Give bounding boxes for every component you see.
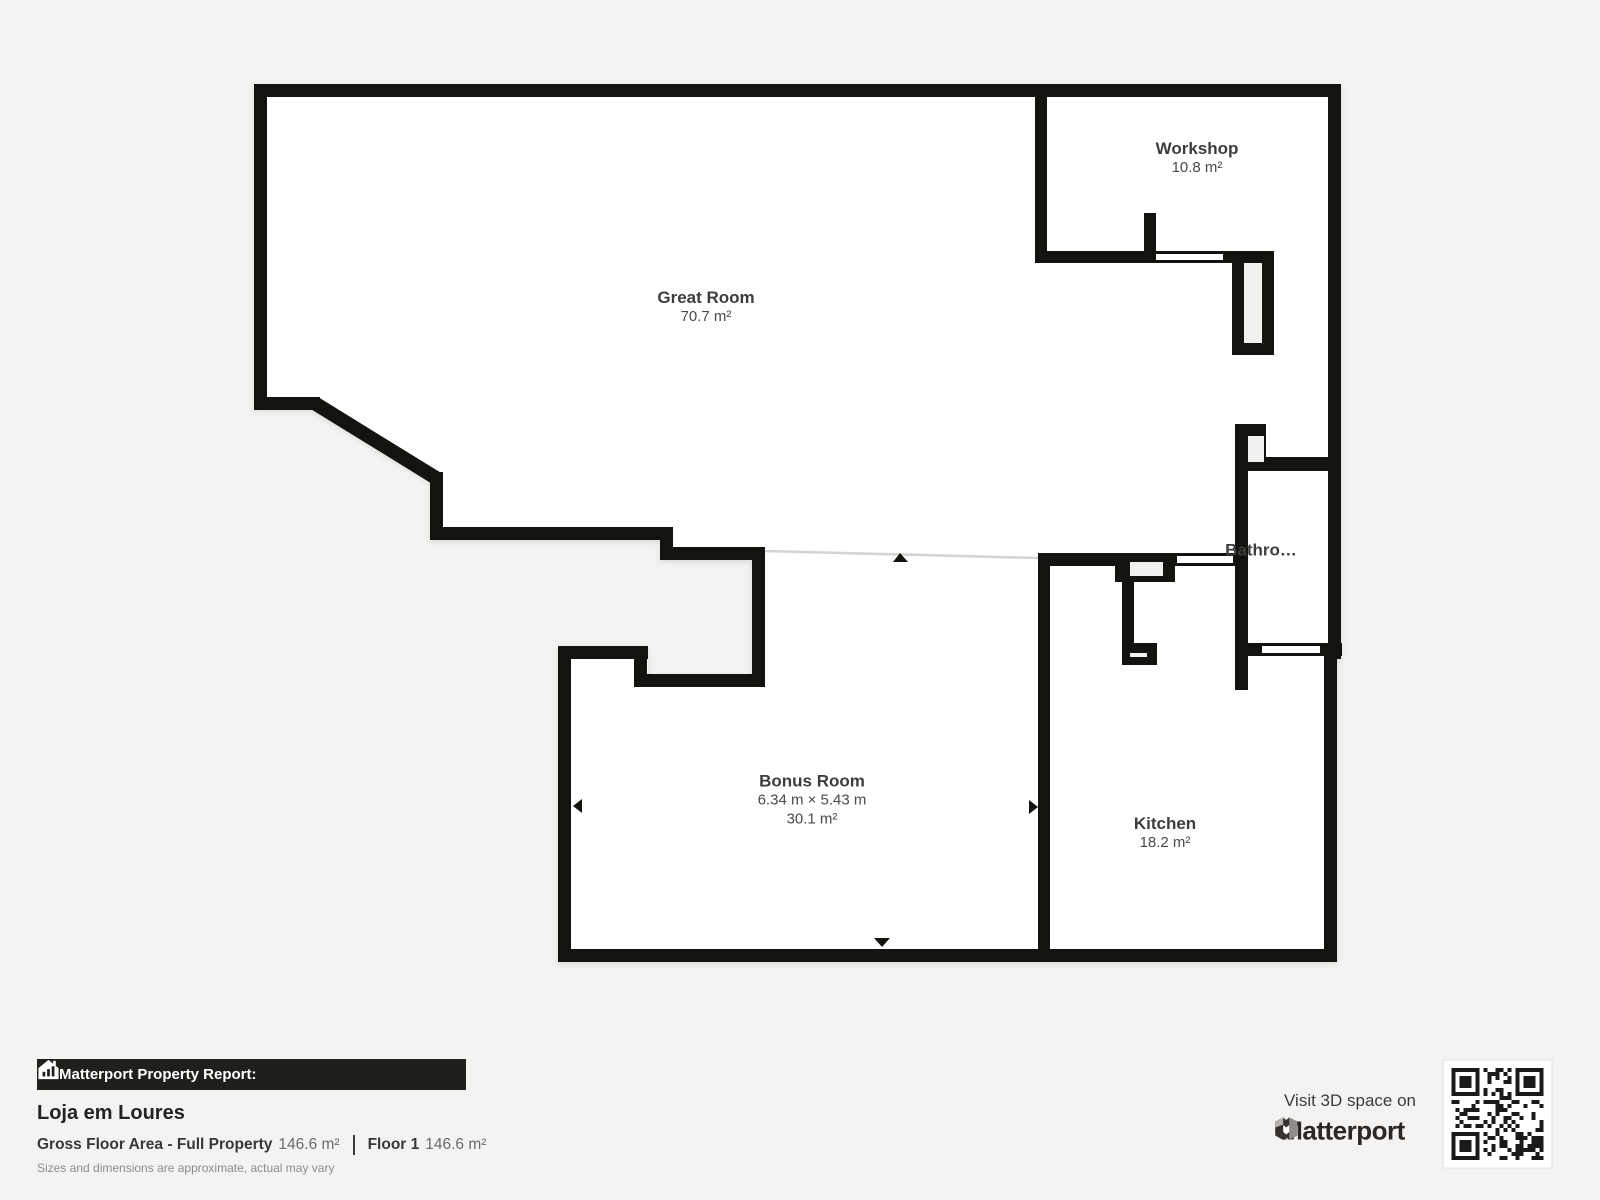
visit-3d-space-text: Visit 3D space on — [1284, 1091, 1416, 1111]
room-label-great-room: Great Room 70.7 m² — [657, 288, 754, 326]
room-name: Bonus Room — [758, 772, 867, 791]
room-name: Great Room — [657, 288, 754, 307]
room-area: 18.2 m² — [1134, 833, 1196, 852]
room-area: 30.1 m² — [758, 810, 867, 829]
room-label-workshop: Workshop 10.8 m² — [1156, 139, 1239, 177]
floorplan-svg — [0, 0, 1600, 1010]
disclaimer-text: Sizes and dimensions are approximate, ac… — [37, 1161, 334, 1175]
room-name: Bathro… — [1225, 541, 1297, 560]
gross-floor-area-label: Gross Floor Area - Full Property — [37, 1136, 272, 1154]
room-area: 10.8 m² — [1156, 158, 1239, 177]
floor-value: 146.6 m² — [425, 1136, 486, 1154]
room-name: Workshop — [1156, 139, 1239, 158]
matterport-brand: Matterport — [1273, 1116, 1405, 1147]
report-bar-title: Matterport Property Report: — [59, 1066, 257, 1083]
area-summary-line: Gross Floor Area - Full Property 146.6 m… — [37, 1134, 486, 1156]
room-name: Kitchen — [1134, 814, 1196, 833]
room-dimensions: 6.34 m × 5.43 m — [758, 791, 867, 810]
room-label-bonus-room: Bonus Room 6.34 m × 5.43 m 30.1 m² — [758, 772, 867, 829]
room-label-kitchen: Kitchen 18.2 m² — [1134, 814, 1196, 852]
room-area: 70.7 m² — [657, 307, 754, 326]
qr-code — [1452, 1068, 1544, 1160]
report-title-bar: Matterport Property Report: — [37, 1059, 466, 1090]
gross-floor-area-value: 146.6 m² — [278, 1136, 339, 1154]
divider — [353, 1135, 355, 1155]
room-label-bathroom: Bathro… — [1225, 541, 1297, 560]
property-name: Loja em Loures — [37, 1102, 185, 1125]
floor-label: Floor 1 — [368, 1136, 420, 1154]
property-report-page: Great Room 70.7 m² Workshop 10.8 m² Bath… — [0, 0, 1600, 1200]
